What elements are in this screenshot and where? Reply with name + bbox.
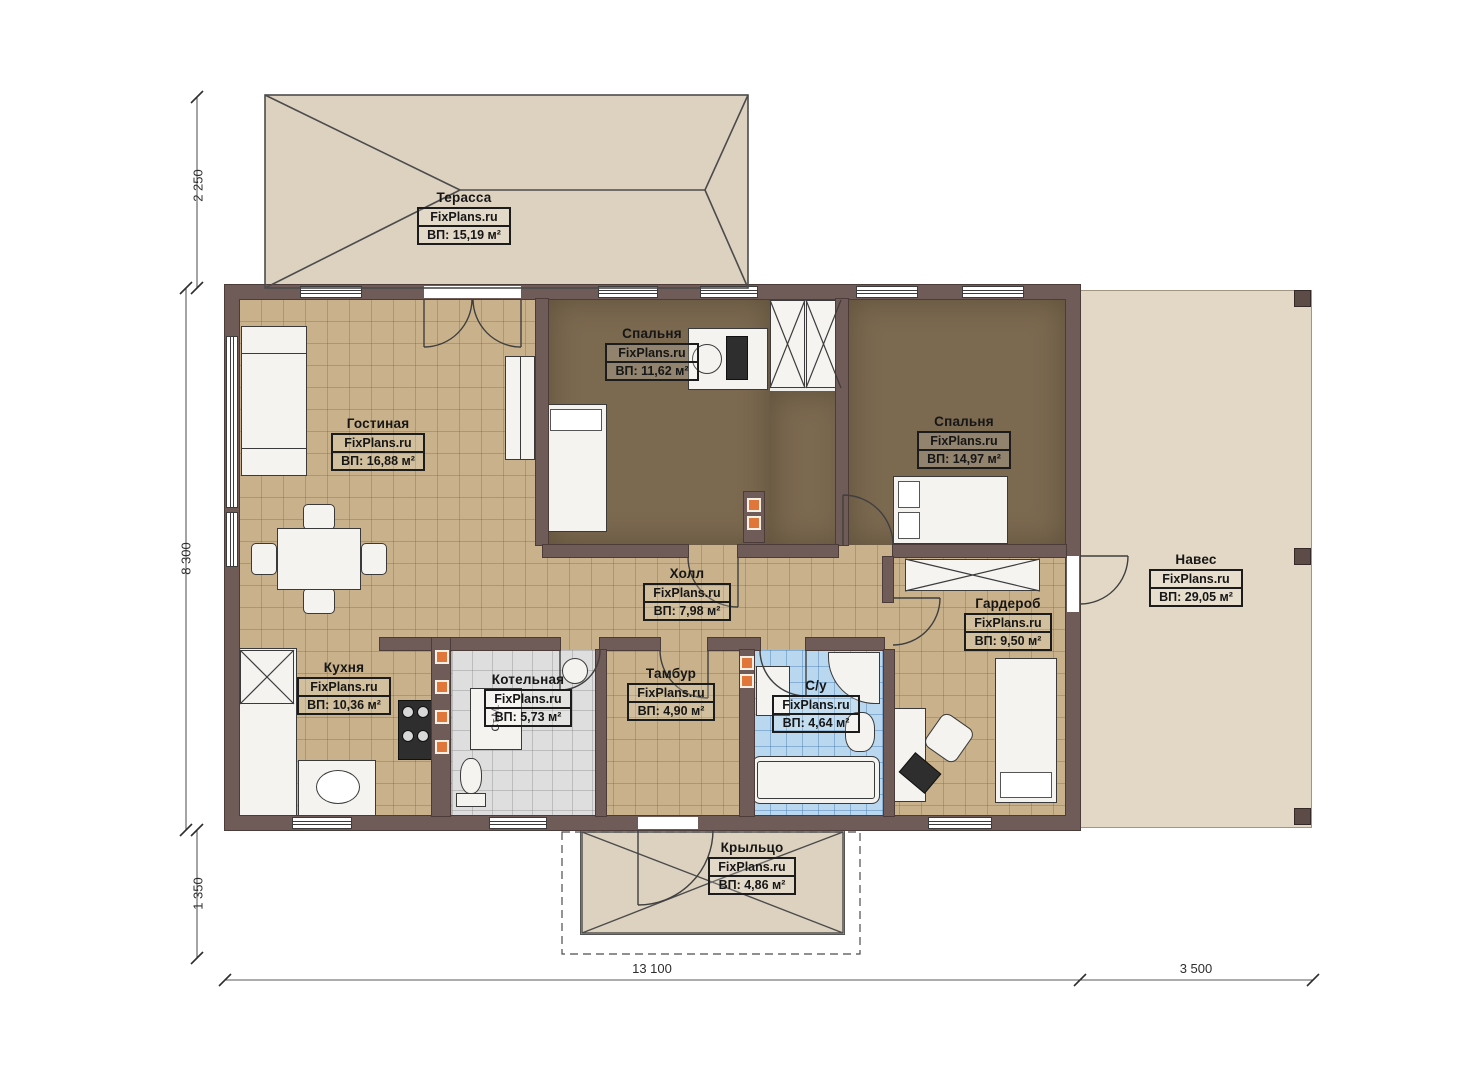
room-name: Котельная [468, 672, 588, 687]
vent [747, 516, 761, 530]
room-label-boiler: Котельная FixPlans.ru ВП: 5,73 м² [468, 672, 588, 727]
room-name: С/у [760, 678, 872, 693]
wall [893, 545, 1066, 557]
wall [836, 299, 848, 545]
room-label-bathroom: С/у FixPlans.ru ВП: 4,64 м² [760, 678, 872, 733]
room-name: Спальня [898, 414, 1030, 429]
window [598, 286, 658, 298]
room-area: ВП: 9,50 м² [966, 633, 1049, 649]
brand-link: FixPlans.ru [919, 433, 1009, 451]
wall [708, 638, 760, 650]
window [226, 336, 238, 508]
room-area: ВП: 5,73 м² [486, 709, 569, 725]
room-area: ВП: 16,88 м² [333, 453, 423, 469]
dimension-left-bottom: 1 350 [191, 859, 206, 929]
canopy-post [1294, 808, 1311, 825]
room-area: ВП: 4,86 м² [710, 877, 793, 893]
vent [740, 656, 754, 670]
wall [600, 638, 660, 650]
chimney-shaft [432, 638, 450, 816]
room-area: ВП: 11,62 м² [607, 363, 696, 379]
window [928, 817, 992, 829]
room-name: Кухня [284, 660, 404, 675]
canopy-post [1294, 548, 1311, 565]
dimension-left-top: 2 250 [191, 151, 206, 221]
brand-link: FixPlans.ru [710, 859, 793, 877]
vent [435, 650, 449, 664]
room-area: ВП: 10,36 м² [299, 697, 389, 713]
brand-link: FixPlans.ru [774, 697, 857, 715]
window [700, 286, 758, 298]
window [300, 286, 362, 298]
canopy-post [1294, 290, 1311, 307]
room-label-wardrobe: Гардероб FixPlans.ru ВП: 9,50 м² [946, 596, 1070, 651]
room-name: Спальня [586, 326, 718, 341]
room-label-bedroom1: Спальня FixPlans.ru ВП: 11,62 м² [586, 326, 718, 381]
wall [536, 299, 548, 545]
wall [450, 638, 560, 650]
wall [543, 545, 688, 557]
window [856, 286, 918, 298]
window [489, 817, 547, 829]
wall [380, 638, 432, 650]
room-name: Тамбур [612, 666, 730, 681]
brand-link: FixPlans.ru [419, 209, 509, 227]
wall [738, 545, 838, 557]
brand-link: FixPlans.ru [645, 585, 728, 603]
window [292, 817, 352, 829]
wall [596, 650, 606, 816]
room-label-canopy: Навес FixPlans.ru ВП: 29,05 м² [1130, 552, 1262, 607]
dimension-left-middle: 8 300 [179, 524, 194, 594]
room-area: ВП: 29,05 м² [1151, 589, 1241, 605]
room-label-bedroom2: Спальня FixPlans.ru ВП: 14,97 м² [898, 414, 1030, 469]
brand-link: FixPlans.ru [1151, 571, 1241, 589]
room-name: Гардероб [946, 596, 1070, 611]
room-name: Холл [625, 566, 749, 581]
room-area: ВП: 15,19 м² [419, 227, 509, 243]
room-label-living: Гостиная FixPlans.ru ВП: 16,88 м² [312, 416, 444, 471]
dimension-bottom-canopy: 3 500 [1136, 961, 1256, 976]
vent [747, 498, 761, 512]
room-name: Терасса [398, 190, 530, 205]
vent [740, 674, 754, 688]
room-area: ВП: 4,64 м² [774, 715, 857, 731]
room-name: Крыльцо [688, 840, 816, 855]
brand-link: FixPlans.ru [486, 691, 569, 709]
brand-link: FixPlans.ru [966, 615, 1049, 633]
room-label-porch: Крыльцо FixPlans.ru ВП: 4,86 м² [688, 840, 816, 895]
wall [883, 557, 893, 602]
entrance-door-opening [638, 817, 698, 829]
window [962, 286, 1024, 298]
wall [884, 650, 894, 816]
vent [435, 710, 449, 724]
room-area: ВП: 14,97 м² [919, 451, 1009, 467]
vent [435, 680, 449, 694]
terrace-door-opening [424, 286, 521, 298]
room-name: Гостиная [312, 416, 444, 431]
room-area: ВП: 7,98 м² [645, 603, 728, 619]
room-label-vestibule: Тамбур FixPlans.ru ВП: 4,90 м² [612, 666, 730, 721]
room-name: Навес [1130, 552, 1262, 567]
vent [435, 740, 449, 754]
brand-link: FixPlans.ru [333, 435, 423, 453]
dimension-bottom-house: 13 100 [592, 961, 712, 976]
room-area: ВП: 4,90 м² [629, 703, 712, 719]
room-label-kitchen: Кухня FixPlans.ru ВП: 10,36 м² [284, 660, 404, 715]
brand-link: FixPlans.ru [299, 679, 389, 697]
brand-link: FixPlans.ru [629, 685, 712, 703]
wall [806, 638, 884, 650]
floor-plan: Ст.М. [0, 0, 1473, 1080]
window [226, 512, 238, 567]
room-label-terrace: Терасса FixPlans.ru ВП: 15,19 м² [398, 190, 530, 245]
room-label-hall: Холл FixPlans.ru ВП: 7,98 м² [625, 566, 749, 621]
brand-link: FixPlans.ru [607, 345, 696, 363]
